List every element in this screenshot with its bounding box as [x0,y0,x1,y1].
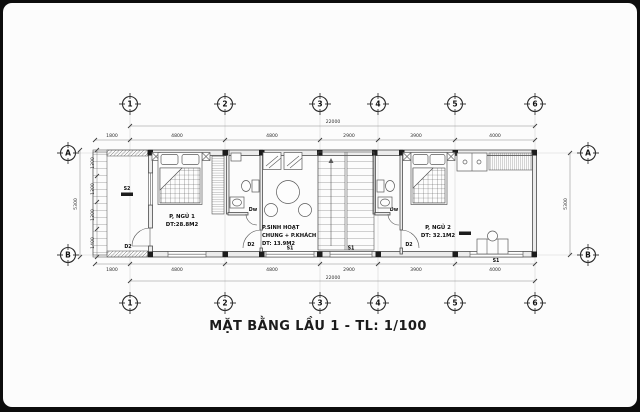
toilet-bowl [386,181,395,192]
room-name: P, NGỦ 2 [425,223,451,231]
toilet-bowl [242,181,251,192]
wall-switch [459,232,471,236]
svg-text:1: 1 [127,100,132,109]
living-room: P.SINH HOẠT CHUNG + P.KHÁCH DT: 13.9M2 [262,153,316,248]
room-name: P.SINH HOẠT [262,225,300,231]
grid-bubble-col: 4 [367,292,389,314]
cabinet [457,153,487,171]
grid-bubble-col: 6 [524,292,546,314]
bedroom2: P, NGỦ 2 DT: 32.1M2 [403,153,532,255]
window-label: S2 [124,186,131,192]
bedroom1: P, NGỦ 1 DT:28.8M2 [152,153,224,229]
balcony [93,150,150,257]
door-label: Dw [249,207,258,213]
sink [233,199,242,206]
grid-bubble-col: 5 [444,93,466,115]
bed [411,153,447,205]
desk-chair [488,231,498,241]
chair [299,204,312,217]
dim-label: 2900 [343,133,355,139]
window-living-1 [266,252,314,258]
shelf [231,153,241,161]
svg-text:5: 5 [452,299,457,308]
grid-bubble-row: A [577,142,599,164]
toilet1 [230,153,259,208]
svg-text:4: 4 [375,299,380,308]
room-area: DT:28.8M2 [166,222,199,228]
dim-total-label: 5300 [563,198,569,210]
table [277,181,300,204]
dim-label: 1800 [106,267,118,273]
grid-bubble-col: 6 [524,93,546,115]
grid-bubble-col: 2 [214,93,236,115]
svg-text:6: 6 [532,299,537,308]
svg-text:2: 2 [222,299,227,308]
window-bed1 [168,252,206,258]
svg-text:5: 5 [452,100,457,109]
grid-bubble-col: 5 [444,292,466,314]
chair [265,204,278,217]
stairs [318,152,374,250]
svg-text:6: 6 [532,100,537,109]
window-living-2 [330,252,372,258]
door-bedroom1: D2 [243,230,261,248]
dim-label: 4000 [489,133,501,139]
door-toilet1: Dw [246,207,258,225]
dimensions-bottom: 1800 4800 4800 2900 3900 4000 22000 [93,262,537,283]
dim-label: 1800 [106,133,118,139]
floor-plan-svg: 1800 4800 4800 2900 3900 4000 22000 1800… [3,3,637,407]
dimensions-top: 1800 4800 4800 2900 3900 4000 22000 [93,119,537,142]
svg-text:3: 3 [317,299,322,308]
toilet-tank [377,180,384,192]
grid-bubble-col: 3 [309,93,331,115]
grid-bubble-row: A [57,142,79,164]
svg-text:B: B [585,251,591,260]
sink [381,199,390,206]
svg-text:2: 2 [222,100,227,109]
screenshot-frame: 1800 4800 4800 2900 3900 4000 22000 1800… [0,0,640,412]
dim-total-label: 5300 [73,198,79,210]
wardrobe [489,153,532,170]
dim-label: 4800 [171,267,183,273]
grid-bubble-row: B [577,244,599,266]
wardrobe [212,156,224,214]
svg-text:B: B [65,251,71,260]
grid-bubble-row: B [57,244,79,266]
room-area: DT: 32.1M2 [421,233,456,239]
blueprint-page: 1800 4800 4800 2900 3900 4000 22000 1800… [3,3,637,407]
svg-text:A: A [585,149,591,158]
door-balcony: D2 [124,228,150,250]
dim-label: 4800 [266,267,278,273]
grid-bubble-col: 2 [214,292,236,314]
toilet2 [377,180,395,208]
dim-total-label: 22000 [326,275,341,281]
room-name: P, NGỦ 1 [169,212,195,220]
grid-bubble-col: 1 [119,292,141,314]
dimensions-right: 5300 [563,151,572,257]
toilet-tank [252,180,259,192]
room-area: DT: 13.9M2 [262,241,295,247]
grid-bubble-col: 4 [367,93,389,115]
dim-label: 3900 [410,133,422,139]
dim-total-label: 22000 [326,119,341,125]
door-label: D2 [247,242,254,248]
door-label: D2 [405,242,412,248]
drawing-title: MẶT BẰNG LẦU 1 - TL: 1/100 [209,316,427,334]
dim-label: 2900 [343,267,355,273]
dim-label: 4800 [266,133,278,139]
svg-text:1: 1 [127,299,132,308]
svg-text:4: 4 [375,100,380,109]
room-name-2: CHUNG + P.KHÁCH [262,232,316,239]
svg-text:A: A [65,149,71,158]
door-bedroom2: D2 [401,230,419,248]
window-s2: S2 [121,173,153,205]
window-label: S1 [493,258,500,264]
svg-text:3: 3 [317,100,322,109]
door-label: D2 [124,244,131,250]
dim-label: 3900 [410,267,422,273]
dim-label: 4800 [171,133,183,139]
grid-bubble-col: 3 [309,292,331,314]
bed [158,153,202,205]
door-toilet2: Dw [388,207,399,225]
desk [477,231,508,254]
dim-label: 4000 [489,267,501,273]
grid-bubble-col: 1 [119,93,141,115]
